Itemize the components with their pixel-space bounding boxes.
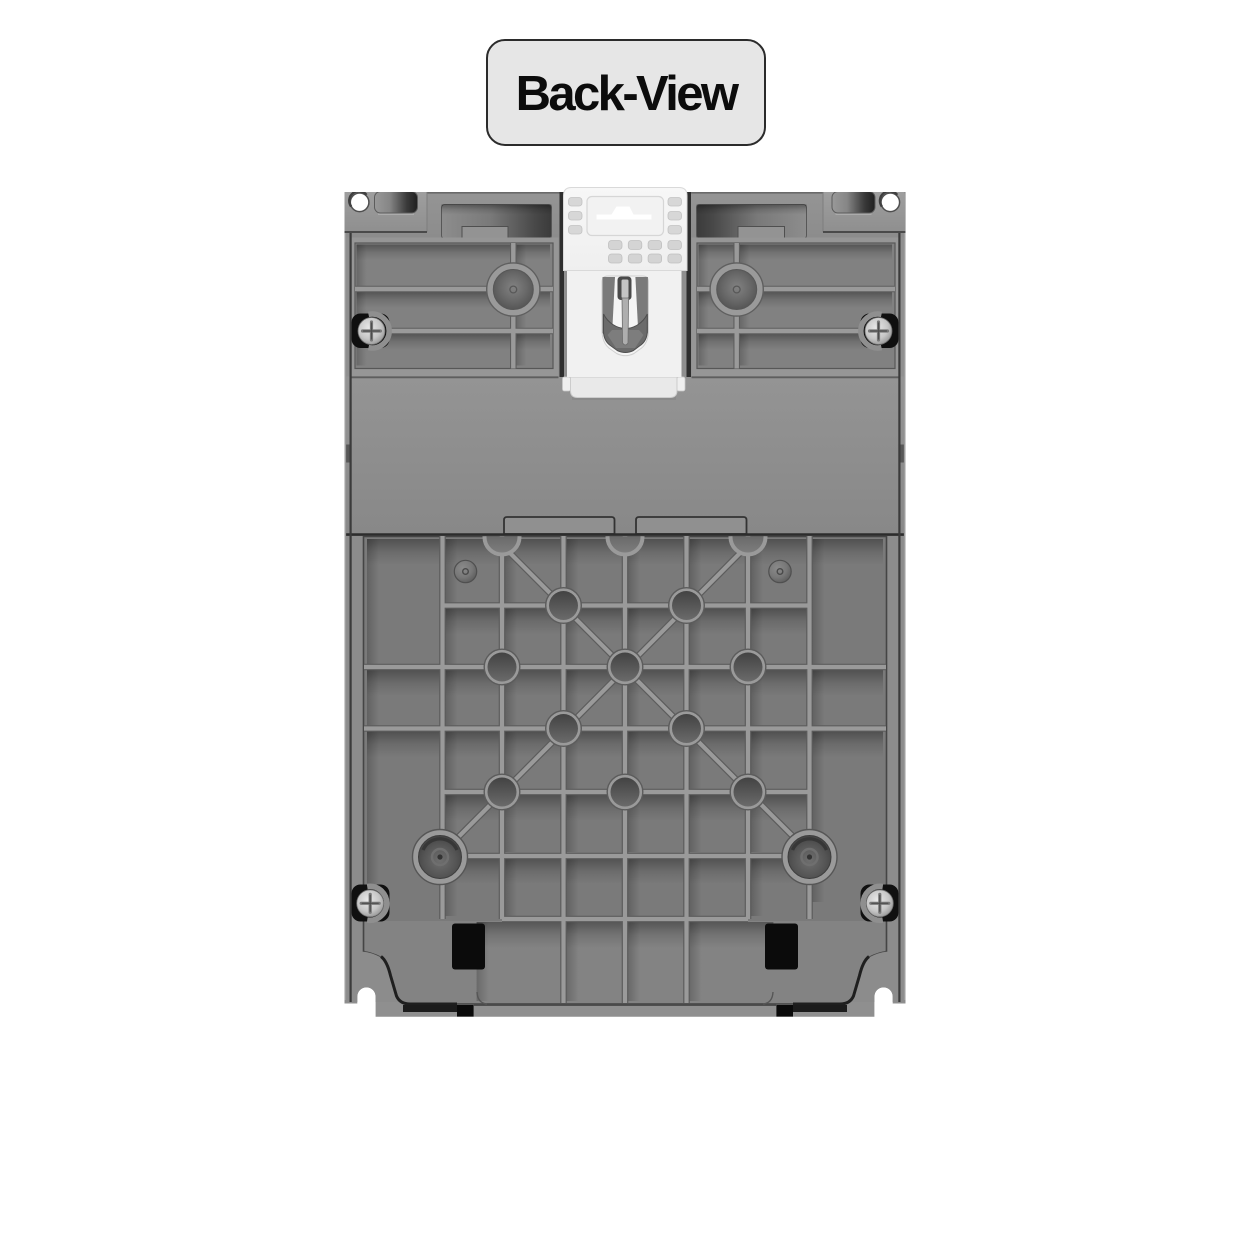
svg-text:Back-View: Back-View (516, 67, 740, 121)
